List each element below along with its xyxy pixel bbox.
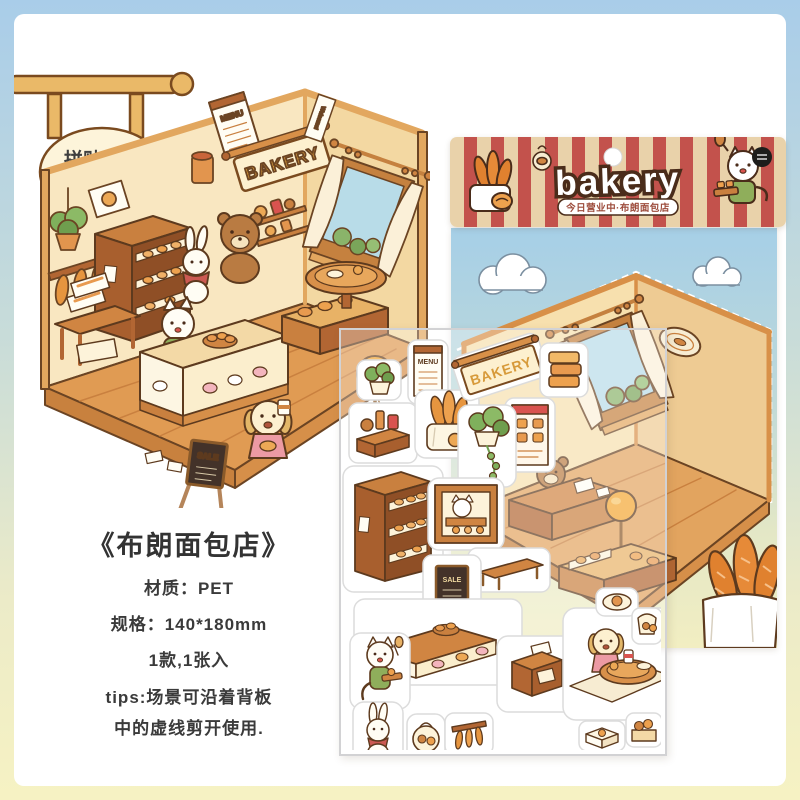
baguette-bag-icon [470,151,514,211]
sticker-plant-small [357,360,401,400]
paper-note [145,450,163,463]
cloud-icon [693,257,741,286]
spec-line: 规格：140*180mm [30,610,348,635]
edge-beam [41,170,49,389]
sticker-bread-bag [407,714,445,750]
bakery-logo-text: bakery [555,160,681,203]
bread-tag-icon [533,146,551,170]
sticker-bakery-sign: BAKERY [450,331,551,403]
material-line: 材质：PET [30,574,348,599]
sticker-sandwich-box [579,721,625,750]
sticker-rabbit [353,702,403,750]
sticker-cake-box [626,713,661,747]
canister-icon [192,152,213,183]
header-cat-icon [713,137,767,203]
product-header-card: bakery 今日营业中·布朗面包店 [450,137,786,227]
brand-badge [752,147,772,167]
sticker-plate-pie [596,588,638,616]
subtitle-text: 今日营业中·布朗面包店 [565,202,670,214]
cloud-icon [479,254,546,294]
product-title: 《布朗面包店》 [30,524,348,563]
printed-baguette-basket [703,534,777,648]
pack-line: 1款,1张入 [30,646,348,671]
paper-note [167,461,182,472]
product-image-card: 拼贴效果 参考图 [14,14,786,786]
sticker-jar-shelf [349,403,417,463]
sticker-hanging-plant [458,405,516,487]
coffee-cup-icon [278,400,290,415]
sticker-sheet-art: MENU [341,330,661,750]
sticker-sale-text: SALE [443,577,462,584]
sticker-menu-text: MENU [418,359,439,366]
sticker-bread-stack [540,343,588,397]
sticker-sheet: MENU [339,328,667,756]
header-art: bakery 今日营业中·布朗面包店 [450,137,786,227]
sticker-bun-bag [632,608,661,644]
sticker-cat-tray [350,633,410,709]
tips-line2: 中的虚线剪开使用. [30,714,348,739]
edge-beam [418,132,427,350]
tips-line1: tips:场景可沿着背板 [30,683,348,708]
sticker-hook-rack [445,713,493,750]
info-block: 《布朗面包店》 材质：PET 规格：140*180mm 1款,1张入 tips:… [30,524,348,739]
sticker-frame-cat [428,478,504,550]
